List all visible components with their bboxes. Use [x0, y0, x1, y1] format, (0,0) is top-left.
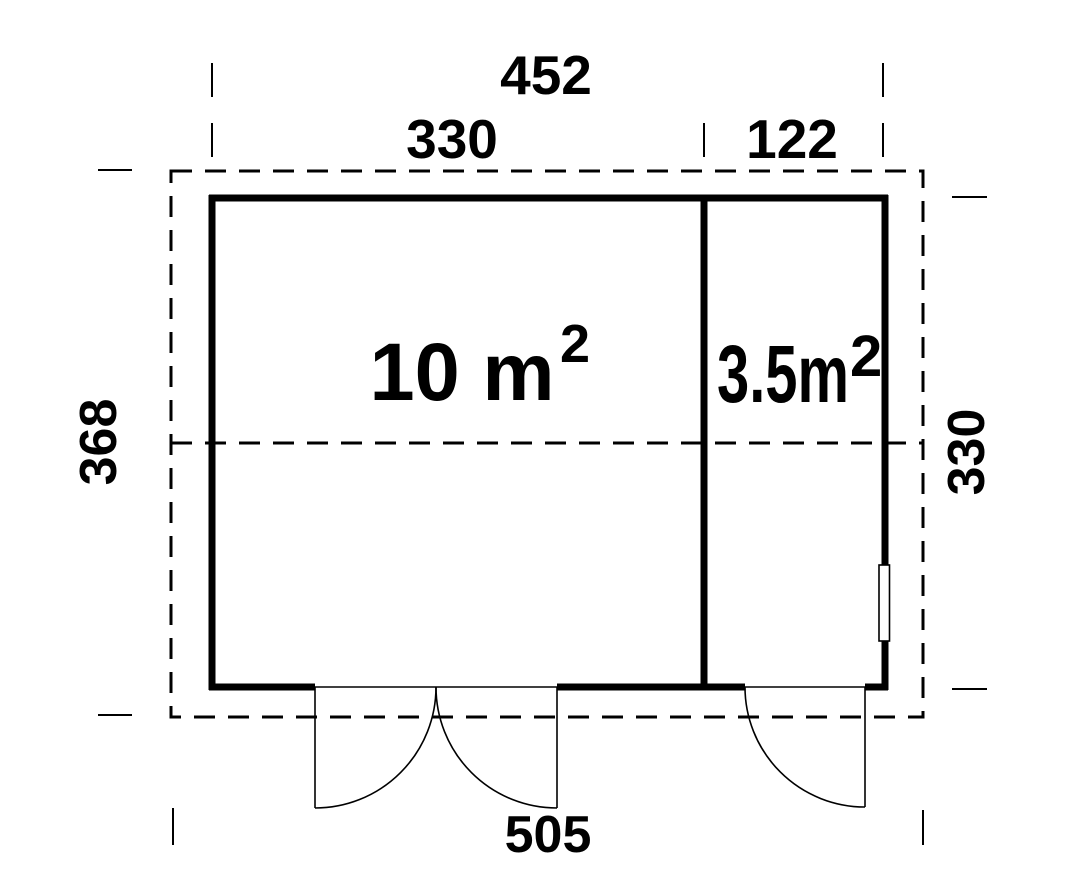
room-area-label-small: 3.5m: [717, 329, 849, 420]
room-area-exponent-small: 2: [850, 324, 882, 389]
window-right-wall: [879, 565, 890, 641]
floor-plan-svg: 452 330 122 368 330 505 10 m 2 3.5m 2: [0, 0, 1092, 896]
dimension-label-right-wall: 330: [938, 409, 996, 496]
room-area-label-large: 10 m: [370, 327, 555, 418]
dimension-label-top-overall: 452: [500, 44, 592, 106]
room-area-exponent-large: 2: [560, 314, 590, 374]
dimension-label-top-left-room: 330: [406, 108, 498, 170]
dimension-label-top-right-room: 122: [746, 108, 838, 170]
floor-plan-canvas: 452 330 122 368 330 505 10 m 2 3.5m 2: [0, 0, 1092, 896]
double-door-right-swing-arc: [436, 687, 557, 808]
double-door-left-swing-arc: [315, 687, 436, 808]
single-door: [745, 687, 865, 807]
double-door: [315, 687, 557, 808]
single-door-swing-arc: [745, 687, 865, 807]
dimension-label-left-overall: 368: [70, 399, 128, 486]
dimension-label-bottom-overall: 505: [505, 806, 592, 864]
